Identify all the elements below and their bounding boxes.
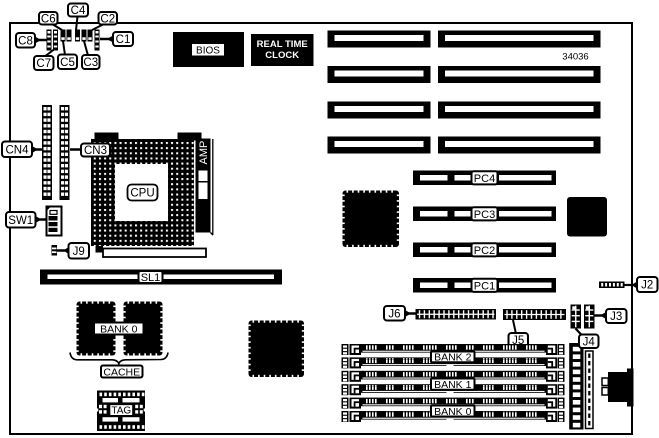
svg-text:REAL TIME: REAL TIME [257, 39, 308, 50]
svg-text:J9: J9 [73, 246, 85, 258]
svg-text:BANK 1: BANK 1 [434, 379, 472, 391]
svg-text:PC3: PC3 [474, 209, 495, 221]
svg-text:AMP: AMP [198, 141, 210, 165]
svg-text:C2: C2 [100, 13, 115, 25]
svg-text:BANK 0: BANK 0 [100, 323, 138, 335]
svg-text:BANK 0: BANK 0 [434, 406, 472, 418]
svg-text:C1: C1 [116, 34, 131, 46]
svg-text:BIOS: BIOS [196, 46, 220, 57]
svg-text:C7: C7 [36, 58, 51, 70]
svg-text:34036: 34036 [562, 52, 588, 63]
svg-text:BANK 2: BANK 2 [434, 352, 472, 364]
svg-text:PC4: PC4 [474, 173, 495, 185]
svg-text:J4: J4 [583, 336, 596, 348]
svg-text:C5: C5 [60, 57, 75, 69]
svg-text:C8: C8 [18, 35, 33, 47]
svg-text:PC2: PC2 [474, 245, 495, 257]
svg-text:PC1: PC1 [474, 280, 495, 292]
svg-text:CLOCK: CLOCK [265, 50, 299, 61]
svg-text:C6: C6 [41, 13, 56, 25]
svg-text:CN3: CN3 [84, 145, 107, 157]
svg-text:J6: J6 [388, 308, 400, 320]
svg-text:CPU: CPU [130, 188, 154, 200]
svg-text:C3: C3 [83, 57, 98, 69]
svg-text:SW1: SW1 [8, 215, 33, 227]
svg-text:C4: C4 [71, 5, 86, 17]
svg-text:SL1: SL1 [141, 272, 161, 284]
svg-text:CACHE: CACHE [103, 366, 140, 378]
svg-text:CN4: CN4 [5, 144, 29, 156]
svg-text:J3: J3 [610, 311, 622, 323]
svg-text:TAG: TAG [111, 406, 131, 417]
svg-text:J2: J2 [641, 280, 653, 292]
